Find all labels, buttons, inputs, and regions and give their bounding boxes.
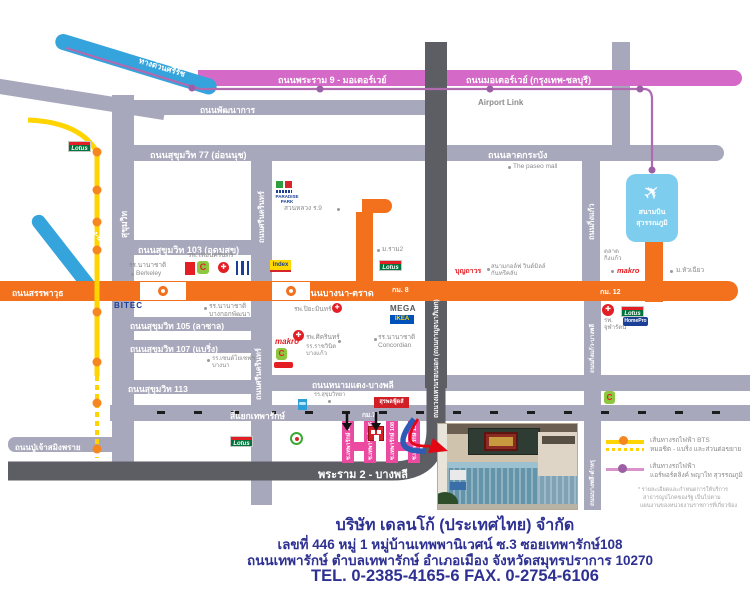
mega-logo: MEGA [390,304,416,314]
hospital-cross-icon: ✚ [332,303,342,313]
label-outer-ring: ถนนวงแหวนรอบนอก (ถนนกาญจนาภิเษก) [431,299,441,418]
landmark-talad-kingkaeo: ตลาด กิ่งแก้ว [604,249,621,263]
poi-dot [328,400,331,403]
label-soi-110: ซ.เทพารักษ์ 110 [411,422,419,460]
label-rama2: พระราม 2 - บางพลี [318,465,408,483]
label-airport-link: Airport Link [478,98,523,108]
legend-note-line2: สาธารณูปโภคของรัฐ เป็นไปตาม [643,494,721,502]
paradise-logo-square-red [285,181,292,188]
photo-gold-panel [489,437,513,446]
landmark-school-blue: รร.สุขุมวิทยา [314,392,345,399]
cross-glyph: ✚ [221,264,227,271]
landmark-logo-green-ring [290,432,303,445]
poi-dot [338,340,341,343]
road-expressway-ramp-h [362,199,392,213]
paradise-logo-stripes [276,190,292,193]
hospital-cross-icon: ✚ [218,262,229,273]
bigc-letter: C [279,349,285,358]
cross-glyph: ✚ [605,306,611,313]
lotus-label: Lotus [622,310,643,317]
label-soi-108: ซ.เทพารักษ์ 108 [389,422,397,460]
road-expressway-ramp-v [356,212,373,284]
poi-dot [670,270,673,273]
label-km7: กม.7 [362,410,376,420]
label-sukhumvit77: ถนนสุขุมวิท 77 (อ่อนนุช) [150,148,247,162]
airport-name-line2: สุวรรณภูมิ [626,218,678,229]
label-kingkaeo-bangphli: ถนนกิ่งแก้ว-บางพลี [587,324,597,373]
landmark-sikarin: รพ.ศิครินทร์ [306,334,340,342]
road-phatthanakan [128,100,436,115]
label-motorway: ถนนมอเตอร์เวย์ (กรุงเทพ-ชลบุรี) [466,73,591,87]
mall-logo-navy [236,261,249,275]
stjoseph-line1: รร.เซนต์โยเซฟฯ [212,356,255,363]
paradise-line2: PARK [270,199,304,204]
landmark-paseo: The paseo mall [513,163,557,171]
photo-small-sign-white [450,470,466,480]
bigc-letter: C [200,262,207,272]
label-sukhumvit105: ถนนสุขุมวิท 105 (ลาซาล) [130,319,224,333]
surapon-label: สุรพลฟู้ดส์ [379,399,403,405]
road-thepharak [110,405,750,421]
cross-glyph: ✚ [334,305,339,311]
company-building-icon [368,426,384,441]
ratwinit-line2: บางแก้ว [306,351,336,358]
poi-dot [611,270,614,273]
lotus-logo: Lotus [621,306,644,317]
homepro-logo: HomePro [623,317,648,326]
label-km8: กม. 8 [392,285,409,296]
building-window [371,430,375,434]
ikea-logo: IKEA [390,315,414,324]
landmark-windmill: สนามกอล์ฟ วินด์มิลล์ กันทรีคลับ [491,264,546,278]
label-bangna-trat: ถนนบางนา-ตราด [305,286,374,300]
landmark-berkeley: รร.นานาชาติ Berkeley [129,262,166,278]
photo-small-sign-blue [450,482,466,490]
school-logo-blue [298,399,307,410]
bts-extension-dashes [120,411,740,414]
stjoseph-line2: บางนา [212,363,255,370]
label-bangphli-tamru: ถนนบางพลี-ตำหรุ [587,460,597,506]
hospital-cross-icon: ✚ [602,304,614,316]
overpass-arc-icon [286,286,296,296]
photo-red-sign [484,432,518,451]
label-kingkaeo: ถนนกิ่งแก้ว [586,203,598,240]
landmark-piyamin: รพ.ปิยะมินทร์ [294,306,332,314]
label-km12: กม. 12 [600,287,621,298]
landmark-ram2: ม.ราม2 [382,246,403,254]
landmark-ratwinit: รร.ราชวินิต บางแก้ว [306,344,336,358]
map-canvas: ทางด่วนศรีรัช ถนนพระราม 9 - มอเตอร์เวย์ … [0,0,750,600]
company-phone-fax: TEL. 0-2385-4165-6 FAX. 0-2754-6106 [80,567,750,586]
label-sanphawut: ถนนสรรพาวุธ [12,286,63,300]
poi-dot [204,307,207,310]
index-label: Index [273,262,289,268]
landmark-concordian: รร.นานาชาติ Concordian [378,334,415,350]
index-logo: Index [270,260,291,272]
poi-dot [131,273,134,276]
legend-note-line3: แผนงานของหน่วยงานราชการที่เกี่ยวข้อง [640,502,737,510]
makro-logo: makro [617,266,640,275]
interchange-symbol-1 [140,282,186,300]
building-door [374,435,379,441]
bigc-logo: C [604,391,615,404]
road-kingkaeo-upper-vertical [612,42,630,152]
label-thepharak-junction: สี่แยกเทพารักษ์ [230,409,285,423]
landmark-bangkok-patana: รร.นานาชาติ บางกอกพัฒนา [209,303,250,319]
legend-bts-station-dot [619,436,628,445]
label-dindaeng-expwy: ทางด่วน ดินแดง-บางนา [61,193,114,256]
poi-dot [207,359,210,362]
makro-logo: makro [275,337,299,346]
road-airport-access [645,240,663,302]
suvarnabhumi-airport-box: ✈ สนามบิน สุวรรณภูมิ [626,174,678,242]
overpass-arc-icon [158,286,168,296]
poi-dot [508,166,511,169]
bigc-logo: C [276,348,287,360]
ikea-label: IKEA [395,316,409,322]
lotus-logo: Lotus [68,141,91,152]
chularat-line2: จุฬารัตน์ [604,325,626,332]
berkeley-line1: รร.นานาชาติ [129,262,166,270]
landmark-boonthavorn: บุญถาวร [455,266,481,277]
concordian-line2: Concordian [378,342,415,350]
paradise-park-logo: PARADISE PARK [270,181,304,207]
berkeley-line2: Berkeley [129,270,166,278]
patana-line2: บางกอกพัฒนา [209,311,250,319]
label-rama9-motorway: ถนนพระราม 9 - มอเตอร์เวย์ [278,73,387,87]
label-srinagarindra-1: ถนนศรีนครินทร์ [256,191,268,243]
legend-bts-text2: หมอชิต - แบริ่ง และส่วนต่อขยาย [650,444,741,454]
patana-line1: รร.นานาชาติ [209,303,250,311]
label-sukhumvit-vertical: สุขุมวิท [117,211,131,238]
bigc-logo: C [197,261,209,274]
store-logo-red-banner [274,362,293,368]
legend-arl-text2: แอร์พอร์ตลิงค์ พญาไท สุวรรณภูมิ [650,470,743,480]
label-namdaeng-bangphli: ถนนหนามแดง-บางพลี [312,378,394,392]
label-sukhumvit113: ถนนสุขุมวิท 113 [128,382,188,396]
label-pujao: ถนนปู่เจ้าสมิงพราย [15,441,81,454]
landmark-thai-nakarin: รพ.ไทยนครินทร์ [188,252,233,260]
logo-wave [299,402,306,405]
poi-dot [337,208,340,211]
poi-dot [374,338,377,341]
lotus-label: Lotus [231,440,252,447]
photo-right-window [542,436,575,444]
location-photo [437,423,578,510]
store-logo-red [185,262,195,275]
lotus-label: Lotus [69,145,90,152]
landmark-suan-luang: สวนหลวง ร.9 [284,205,322,213]
logo-center-dot [295,437,299,441]
legend-note-line1: * รายละเอียดและกำหนดการให้บริการ [638,486,728,494]
paradise-logo-square-green [276,181,283,188]
windmill-line2: กันทรีคลับ [491,271,546,278]
landmark-huachiew: ม.หัวเฉียว [676,267,704,275]
paradise-park-name: PARADISE PARK [270,194,304,205]
label-soi-104: ซ.เทพารักษ์ 104 [345,422,353,460]
lotus-logo: Lotus [379,260,402,271]
lotus-label: Lotus [380,264,401,271]
bigc-letter: C [607,393,613,402]
surapon-foods-badge: สุรพลฟู้ดส์ [374,397,409,408]
landmark-st-joseph: รร.เซนต์โยเซฟฯ บางนา [212,356,255,370]
legend-bts-extension-line [606,448,644,451]
label-phatthanakan: ถนนพัฒนาการ [200,103,255,117]
label-latkrabang: ถนนลาดกระบัง [488,148,547,162]
poi-dot [377,249,380,252]
poi-dot [487,268,490,271]
legend-arl-station-dot [618,464,627,473]
bitec-logo: BITEC [114,301,143,311]
lotus-logo: Lotus [230,436,253,447]
building-window [377,430,381,434]
concordian-line1: รร.นานาชาติ [378,334,415,342]
talad-line2: กิ่งแก้ว [604,256,621,263]
homepro-label: HomePro [624,318,646,324]
label-sukhumvit107: ถนนสุขุมวิท 107 (แบริ่ง) [130,342,218,356]
